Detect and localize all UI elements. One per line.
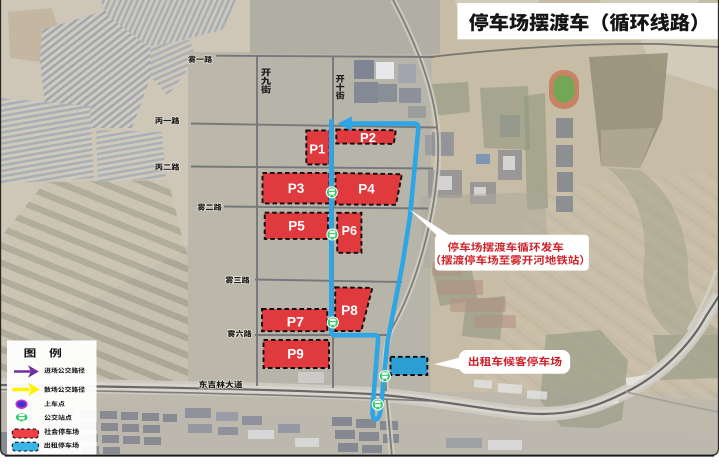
svg-text:P8: P8 xyxy=(341,303,358,318)
svg-text:P4: P4 xyxy=(358,181,375,196)
svg-text:P1: P1 xyxy=(309,142,325,157)
svg-text:P9: P9 xyxy=(287,347,304,362)
svg-text:P7: P7 xyxy=(287,313,304,329)
svg-text:P3: P3 xyxy=(288,181,305,196)
svg-text:P5: P5 xyxy=(288,219,305,234)
svg-text:P6: P6 xyxy=(342,224,357,238)
svg-text:P2: P2 xyxy=(360,130,376,145)
